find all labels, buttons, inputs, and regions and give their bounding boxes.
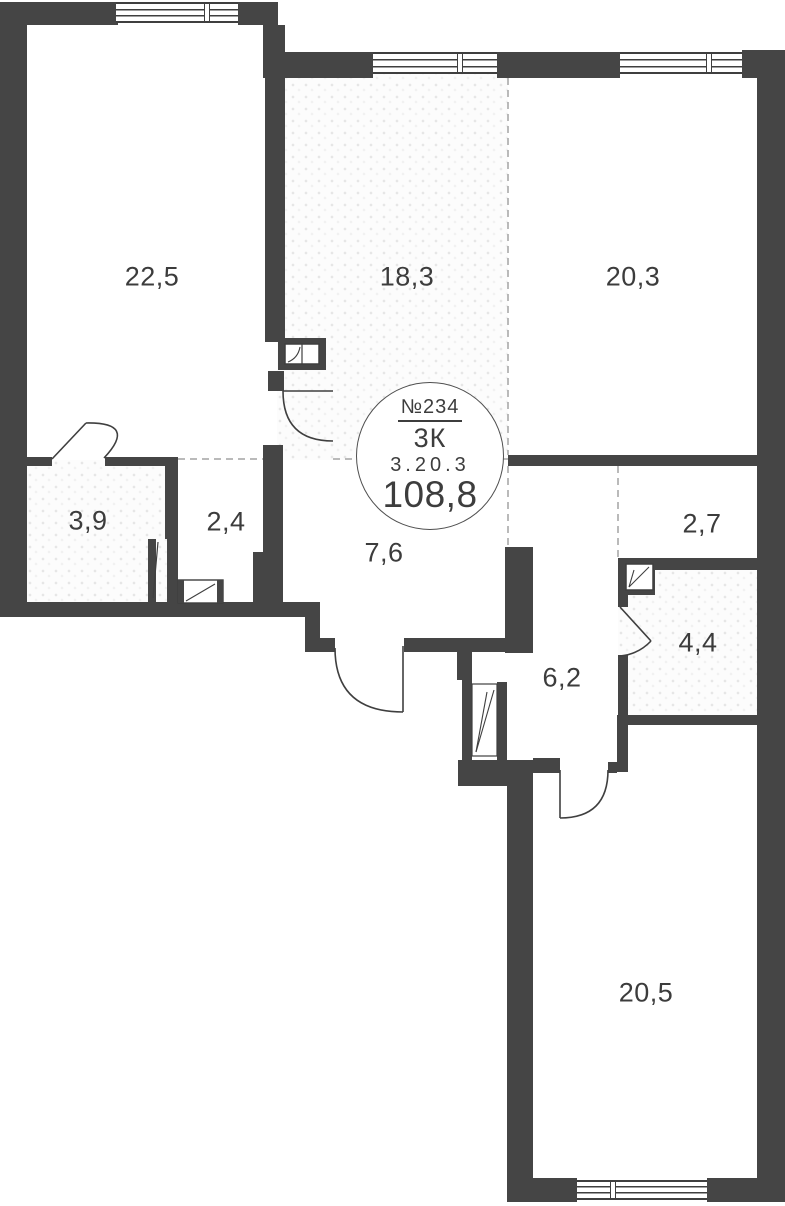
windows-layer [0, 0, 785, 1206]
window [577, 1180, 707, 1200]
window-mullion [457, 54, 463, 72]
floor-plan: №234 3К 3.20.3 108,8 22,5 18,3 20,3 3,9 … [0, 0, 785, 1206]
room-area-label-20-3: 20,3 [606, 262, 661, 293]
room-area-label-4-4: 4,4 [678, 628, 717, 659]
window-mullion [610, 1182, 616, 1198]
window [620, 52, 742, 74]
unit-number: №234 [398, 397, 463, 422]
room-area-label-20-5: 20,5 [619, 978, 674, 1009]
unit-code: 3.20.3 [390, 454, 470, 476]
window [116, 2, 238, 23]
window-mullion [706, 54, 712, 72]
window-mullion [204, 4, 210, 21]
room-area-label-18-3: 18,3 [380, 262, 435, 293]
unit-rooms-count: 3К [414, 423, 447, 454]
room-area-label-22-5: 22,5 [125, 262, 180, 293]
room-area-label-7-6: 7,6 [364, 538, 403, 569]
unit-info-badge: №234 3К 3.20.3 108,8 [356, 382, 504, 530]
room-area-label-2-4: 2,4 [206, 507, 245, 538]
room-area-label-6-2: 6,2 [542, 663, 581, 694]
room-area-label-3-9: 3,9 [68, 506, 107, 537]
unit-total-area: 108,8 [382, 476, 477, 515]
window [373, 52, 497, 74]
room-area-label-2-7: 2,7 [682, 509, 721, 540]
